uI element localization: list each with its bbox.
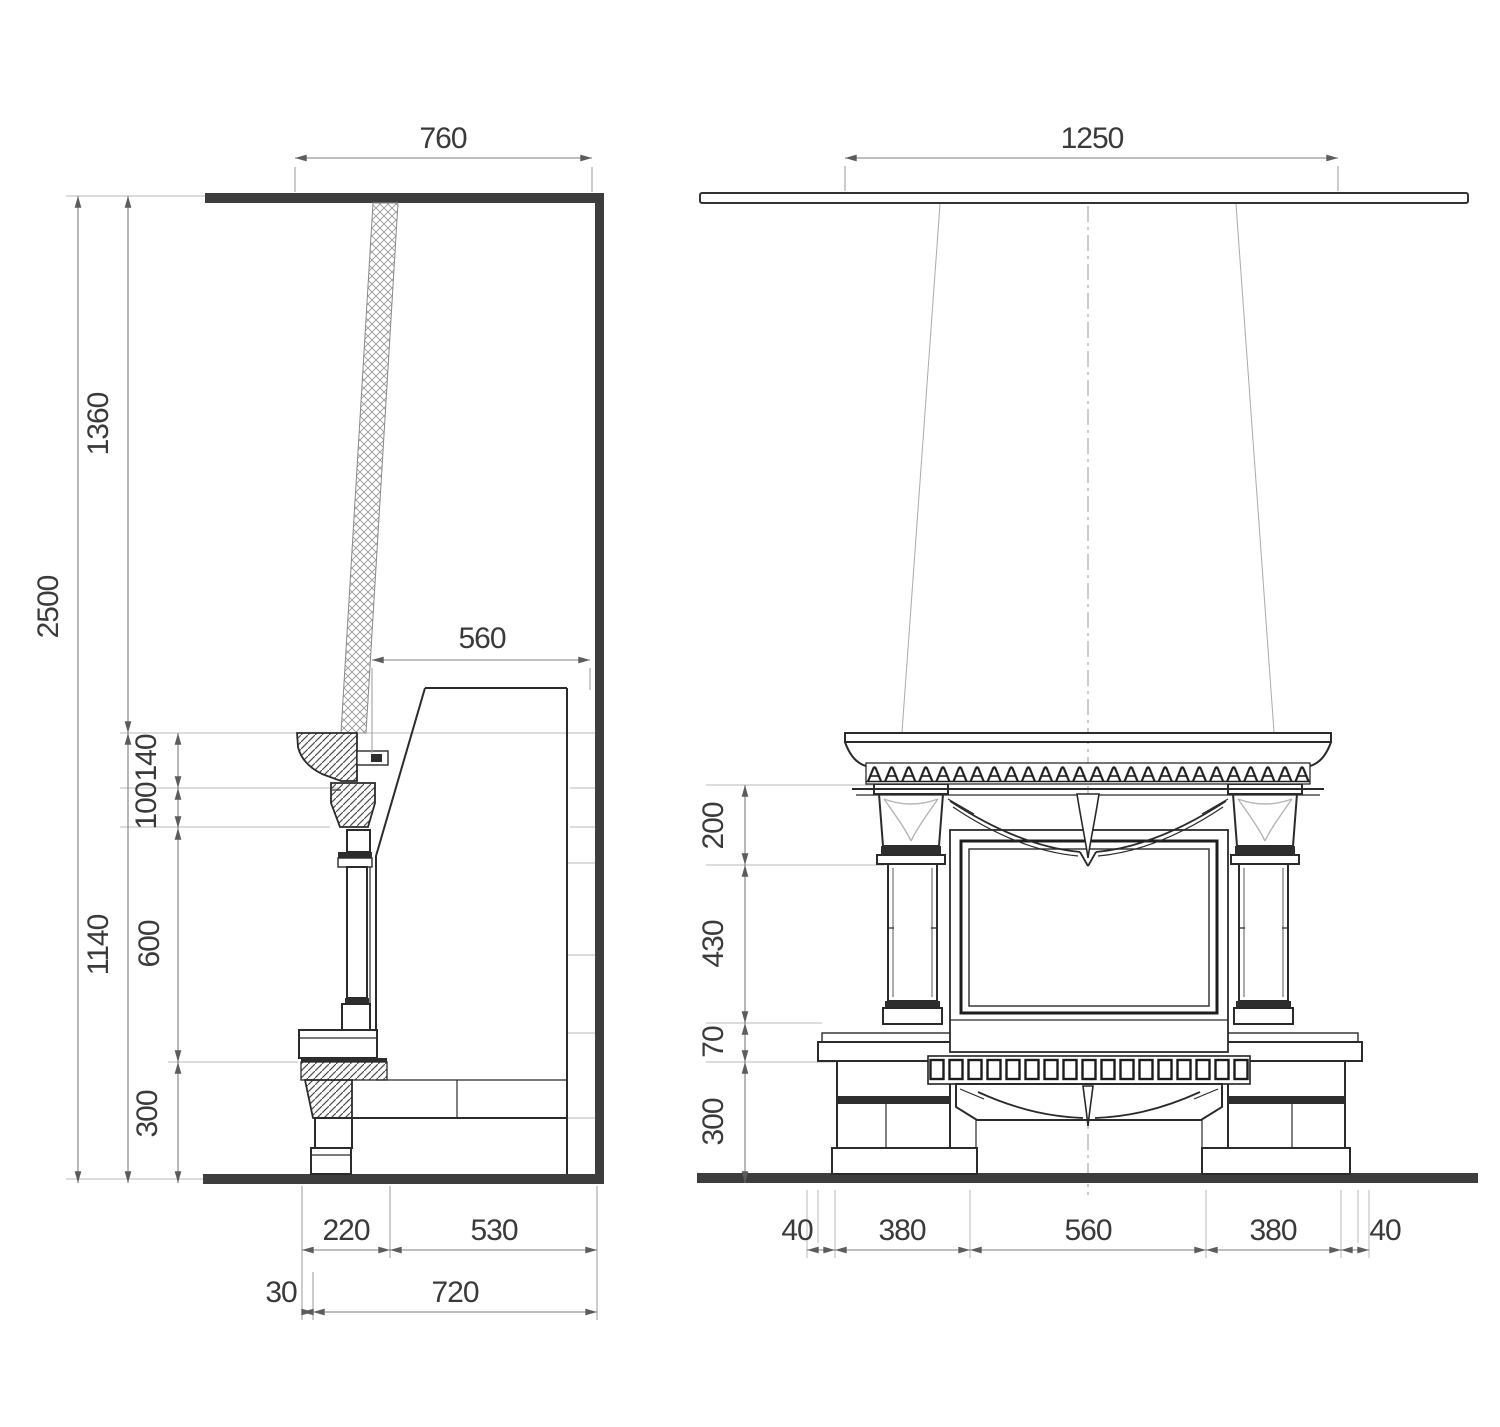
plinth-block — [315, 1118, 352, 1148]
front-dim-70: 70 — [697, 1026, 730, 1058]
front-dim-380-left: 380 — [878, 1214, 925, 1247]
side-dim-1360: 1360 — [82, 392, 115, 455]
capital-body — [1233, 794, 1297, 846]
side-dim-100: 100 — [130, 782, 163, 829]
column-shaft — [1239, 864, 1288, 1001]
side-dim-760: 760 — [419, 122, 466, 155]
front-dim-40-right: 40 — [1369, 1214, 1401, 1247]
front-dim-1250: 1250 — [1061, 122, 1124, 155]
column-base-profile — [342, 1004, 370, 1030]
front-view: 1250 200 430 70 300 40 380 560 380 40 — [697, 122, 1478, 1258]
blueprint-page: 760 2500 1360 1140 140 100 600 300 560 2… — [0, 0, 1500, 1427]
front-dim-430: 430 — [697, 920, 730, 967]
base-course-left — [832, 1148, 977, 1174]
side-dim-1140: 1140 — [82, 914, 115, 975]
column-base — [883, 1008, 942, 1024]
hearth-shelf-profile — [299, 1030, 377, 1058]
base-corbel-hatched — [305, 1080, 352, 1118]
side-dim-2500: 2500 — [32, 575, 65, 638]
front-dim-560: 560 — [1064, 1214, 1111, 1247]
floor-slab — [203, 1174, 604, 1184]
side-dim-300: 300 — [131, 1090, 164, 1137]
fireplace-drawing: 760 2500 1360 1140 140 100 600 300 560 2… — [0, 0, 1500, 1427]
flue-projection-right — [1236, 204, 1274, 732]
egg-dart-band — [866, 763, 1310, 784]
base-block — [311, 1148, 351, 1174]
side-dim-720: 720 — [431, 1276, 478, 1309]
ceiling-slab — [205, 193, 604, 203]
ceiling-line — [700, 193, 1468, 203]
capital-neck — [877, 855, 945, 864]
side-column — [338, 830, 372, 1030]
front-dim-300: 300 — [697, 1098, 730, 1145]
capital-body — [879, 794, 943, 846]
column-left — [883, 864, 942, 1024]
column-right — [1234, 864, 1293, 1024]
smoke-chamber-body — [376, 688, 567, 1080]
side-dim-220: 220 — [322, 1214, 369, 1247]
front-dim-40-left: 40 — [781, 1214, 813, 1247]
side-dim-140: 140 — [130, 734, 163, 781]
mantel-top-slab — [845, 733, 1331, 742]
side-view: 760 2500 1360 1140 140 100 600 300 560 2… — [32, 122, 604, 1320]
side-hearth-base — [299, 1030, 387, 1174]
front-dim-200: 200 — [697, 802, 730, 849]
side-dim-530: 530 — [470, 1214, 517, 1247]
column-base — [1234, 1008, 1293, 1024]
column-neck — [347, 830, 370, 852]
apron-panel — [956, 1084, 1222, 1126]
floor-line — [697, 1173, 1478, 1183]
side-dim-30: 30 — [265, 1276, 297, 1309]
capital-right — [1228, 784, 1302, 864]
base-course-right — [1202, 1148, 1350, 1174]
mantel-section — [297, 733, 357, 781]
hearth-slab-hatched — [301, 1062, 387, 1080]
chimney-flue — [341, 203, 398, 733]
back-wall — [595, 193, 604, 1183]
capital-neck — [1231, 855, 1299, 864]
flue-projection-left — [902, 204, 940, 732]
side-mantel — [297, 733, 388, 827]
side-dim-560: 560 — [458, 622, 505, 655]
dentil-course — [928, 1056, 1250, 1084]
front-dim-380-right: 380 — [1249, 1214, 1296, 1247]
column-shaft-profile — [347, 867, 367, 998]
capital-left — [874, 784, 948, 864]
column-shaft — [888, 864, 937, 1001]
side-dim-600: 600 — [133, 920, 166, 967]
